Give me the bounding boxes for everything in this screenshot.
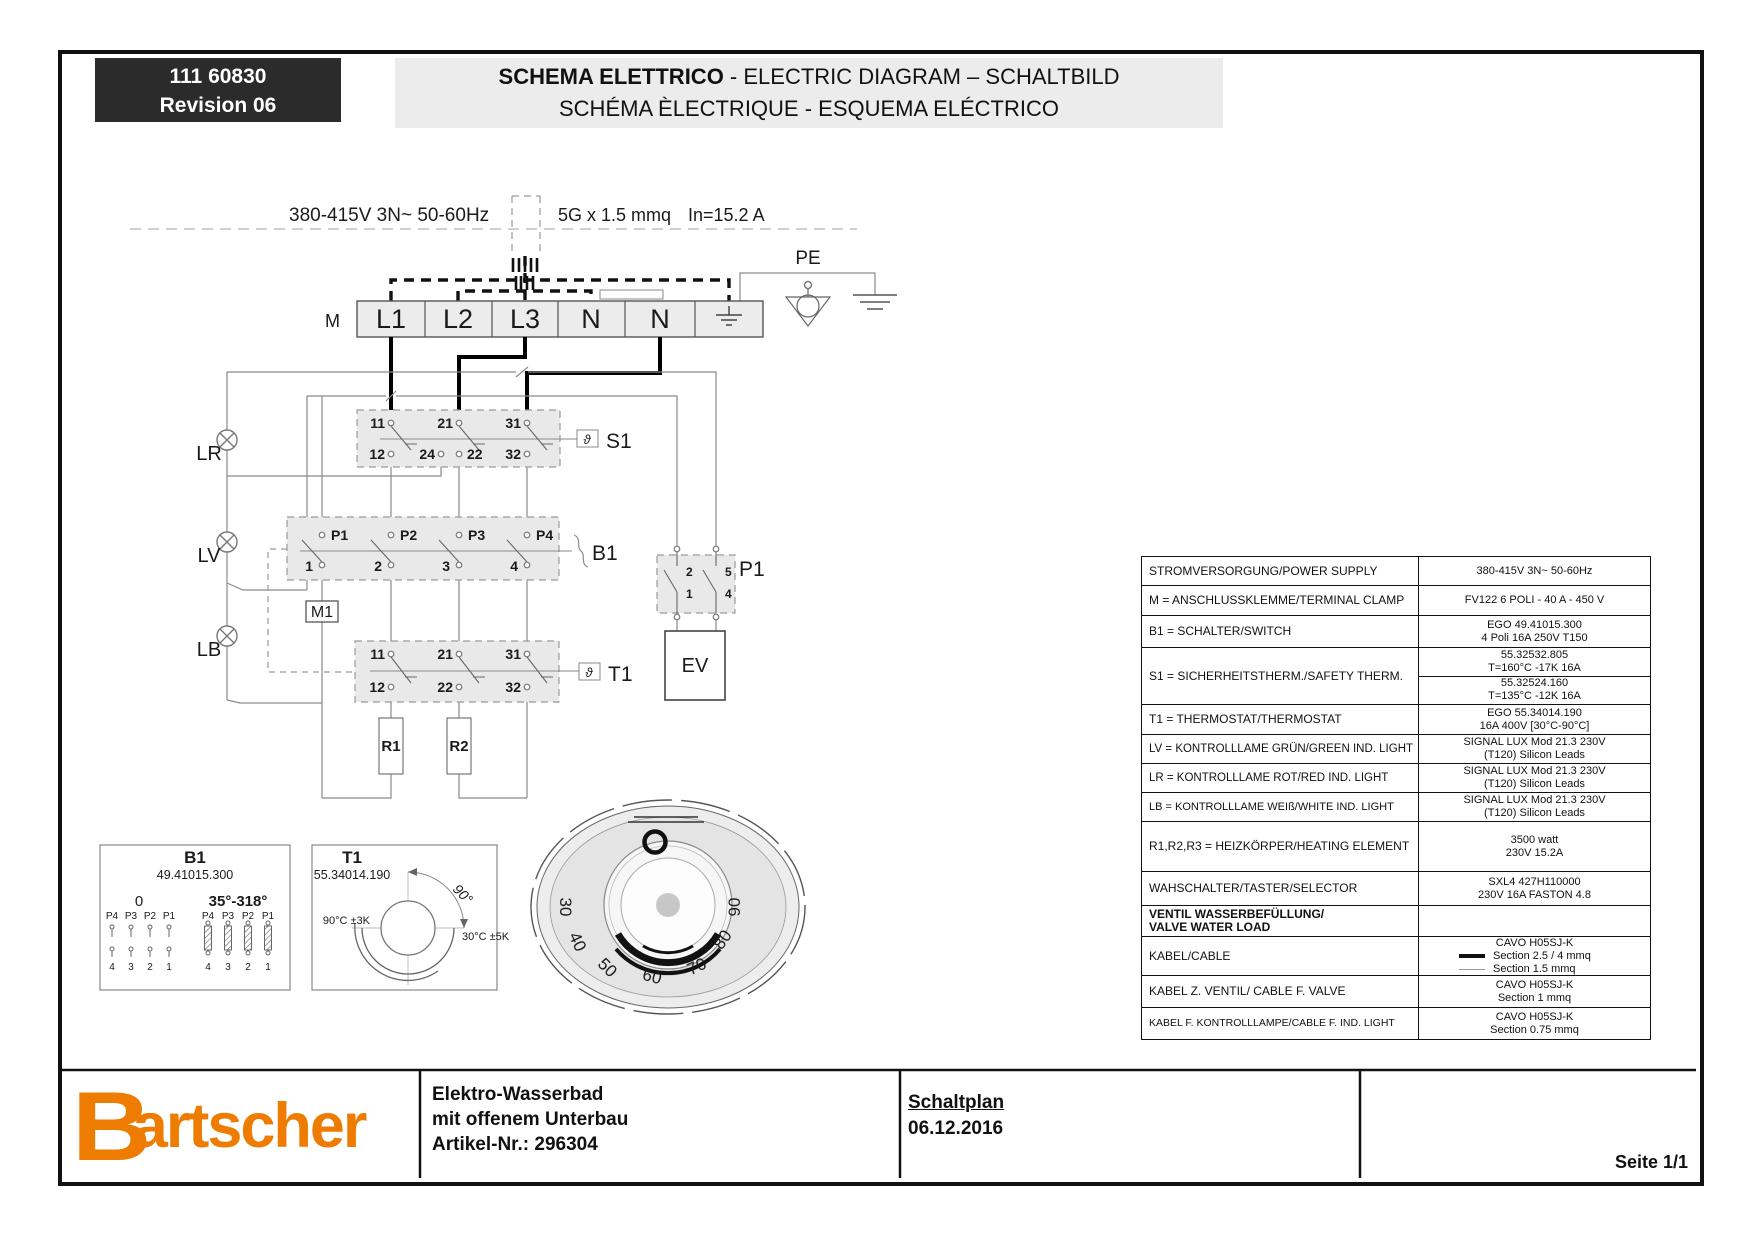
product-line: Artikel-Nr.: 296304 bbox=[432, 1132, 628, 1157]
plan-date: 06.12.2016 bbox=[908, 1116, 1004, 1142]
component-table: STROMVERSORGUNG/POWER SUPPLY380-415V 3N~… bbox=[1141, 556, 1651, 1040]
brand-logo: Bartscher bbox=[72, 1086, 412, 1172]
svg-text:22: 22 bbox=[437, 679, 453, 695]
svg-text:P1: P1 bbox=[739, 558, 765, 581]
phase-wires bbox=[391, 337, 660, 421]
svg-text:90: 90 bbox=[725, 898, 744, 917]
table-row-kabel: KABEL/CABLE CAVO H05SJ-K Section 2.5 / 4… bbox=[1142, 936, 1650, 975]
svg-text:35°-318°: 35°-318° bbox=[209, 893, 268, 910]
svg-text:T1: T1 bbox=[608, 663, 633, 686]
svg-text:4: 4 bbox=[510, 558, 518, 574]
schematic-page: 111 60830 Revision 06 SCHEMA ELETTRICO -… bbox=[0, 0, 1754, 1241]
product-line: mit offenem Unterbau bbox=[432, 1107, 628, 1132]
t1-block: 11 21 31 12 22 32 ϑ T1 bbox=[355, 641, 633, 702]
svg-text:32: 32 bbox=[505, 446, 521, 462]
svg-text:5G x 1.5 mmq: 5G x 1.5 mmq bbox=[558, 205, 671, 225]
supply-labels: 380-415V 3N~ 50-60Hz 5G x 1.5 mmq In=15.… bbox=[130, 205, 857, 229]
svg-text:55.34014.190: 55.34014.190 bbox=[314, 868, 391, 882]
svg-text:11: 11 bbox=[370, 646, 385, 662]
svg-text:2: 2 bbox=[147, 962, 153, 973]
b1-detail: B1 49.41015.300 0 35°-318° P4 P3 P2 P1 P… bbox=[100, 845, 290, 990]
svg-text:21: 21 bbox=[437, 646, 453, 662]
svg-text:90°C ±3K: 90°C ±3K bbox=[323, 915, 371, 927]
svg-text:B1: B1 bbox=[592, 542, 618, 565]
table-row: KABEL Z. VENTIL/ CABLE F. VALVECAVO H05S… bbox=[1142, 975, 1650, 1007]
svg-text:T1: T1 bbox=[342, 848, 362, 867]
svg-text:3: 3 bbox=[225, 962, 231, 973]
table-row: LB = KONTROLLLAME WEIß/WHITE IND. LIGHTS… bbox=[1142, 792, 1650, 821]
table-row: T1 = THERMOSTAT/THERMOSTATEGO 55.34014.1… bbox=[1142, 704, 1650, 734]
svg-text:1: 1 bbox=[265, 962, 271, 973]
ev-box: EV bbox=[665, 631, 725, 700]
brand-logo-text: artscher bbox=[133, 1091, 366, 1161]
indicator-lamps: LR LV LB bbox=[196, 430, 237, 661]
table-row: KABEL F. KONTROLLLAMPE/CABLE F. IND. LIG… bbox=[1142, 1007, 1650, 1039]
table-row: B1 = SCHALTER/SWITCHEGO 49.41015.3004 Po… bbox=[1142, 615, 1650, 647]
svg-text:22: 22 bbox=[467, 446, 483, 462]
pe-earth-symbol bbox=[786, 282, 830, 327]
svg-text:3: 3 bbox=[128, 962, 134, 973]
svg-text:1: 1 bbox=[166, 962, 172, 973]
svg-text:N: N bbox=[650, 304, 670, 334]
svg-text:P3: P3 bbox=[125, 911, 138, 922]
svg-text:0: 0 bbox=[135, 893, 143, 910]
knob-drawing: 30 40 50 60 70 80 90 bbox=[531, 800, 805, 1014]
svg-text:P2: P2 bbox=[400, 527, 417, 543]
table-row: STROMVERSORGUNG/POWER SUPPLY380-415V 3N~… bbox=[1142, 557, 1650, 585]
svg-text:32: 32 bbox=[505, 679, 521, 695]
product-line: Elektro-Wasserbad bbox=[432, 1082, 628, 1107]
svg-text:31: 31 bbox=[505, 415, 521, 431]
svg-text:P1: P1 bbox=[163, 911, 176, 922]
svg-text:LB: LB bbox=[197, 639, 221, 661]
svg-text:4: 4 bbox=[205, 962, 211, 973]
svg-text:P1: P1 bbox=[331, 527, 348, 543]
svg-text:L3: L3 bbox=[510, 304, 540, 334]
svg-text:R2: R2 bbox=[449, 738, 468, 755]
svg-text:21: 21 bbox=[437, 415, 453, 431]
svg-text:P2: P2 bbox=[144, 911, 157, 922]
svg-text:2: 2 bbox=[686, 565, 693, 579]
svg-text:LV: LV bbox=[198, 545, 222, 567]
svg-text:31: 31 bbox=[505, 646, 521, 662]
p1-block: 2 1 5 4 P1 bbox=[657, 546, 765, 620]
svg-text:P2: P2 bbox=[242, 911, 255, 922]
svg-text:5: 5 bbox=[725, 565, 732, 579]
svg-text:P1: P1 bbox=[262, 911, 275, 922]
svg-text:4: 4 bbox=[109, 962, 115, 973]
svg-text:ϑ: ϑ bbox=[585, 665, 593, 680]
plan-info: Schaltplan 06.12.2016 bbox=[908, 1090, 1004, 1142]
nn-jumper bbox=[600, 290, 663, 299]
svg-text:L1: L1 bbox=[376, 304, 406, 334]
table-row-ventil: VENTIL WASSERBEFÜLLUNG/VALVE WATER LOAD bbox=[1142, 905, 1650, 936]
svg-text:1: 1 bbox=[305, 558, 313, 574]
table-row: M = ANSCHLUSSKLEMME/TERMINAL CLAMPFV122 … bbox=[1142, 585, 1650, 615]
svg-text:P3: P3 bbox=[468, 527, 485, 543]
s1-block: 11 21 31 12 24 22 32 ϑ S1 bbox=[357, 410, 632, 467]
svg-text:PE: PE bbox=[795, 248, 820, 269]
svg-text:EV: EV bbox=[682, 655, 709, 677]
svg-text:1: 1 bbox=[686, 587, 693, 601]
svg-text:S1: S1 bbox=[606, 430, 632, 453]
plan-title: Schaltplan bbox=[908, 1090, 1004, 1116]
table-row-s1: S1 = SICHERHEITSTHERM./SAFETY THERM. 55.… bbox=[1142, 647, 1650, 704]
svg-text:R1: R1 bbox=[381, 738, 400, 755]
svg-text:P4: P4 bbox=[536, 527, 553, 543]
page-number: Seite 1/1 bbox=[1480, 1152, 1688, 1173]
svg-text:12: 12 bbox=[369, 446, 385, 462]
knob-center-dot bbox=[656, 893, 680, 917]
svg-text:2: 2 bbox=[245, 962, 251, 973]
product-info: Elektro-Wasserbad mit offenem Unterbau A… bbox=[432, 1082, 628, 1157]
heating-elements: R1 R2 bbox=[379, 718, 471, 774]
svg-text:30°C ±5K: 30°C ±5K bbox=[462, 931, 510, 943]
svg-text:P4: P4 bbox=[202, 911, 215, 922]
table-row: LR = KONTROLLLAME ROT/RED IND. LIGHTSIGN… bbox=[1142, 763, 1650, 792]
svg-text:11: 11 bbox=[370, 415, 385, 431]
t1-detail: T1 55.34014.190 90° 90°C ±3K 30°C ±5K bbox=[312, 845, 510, 990]
svg-text:24: 24 bbox=[419, 446, 435, 462]
table-row: R1,R2,R3 = HEIZKÖRPER/HEATING ELEMENT350… bbox=[1142, 821, 1650, 871]
svg-text:30: 30 bbox=[556, 898, 575, 917]
b1-block: P1 P2 P3 P4 1 2 3 4 B1 bbox=[287, 517, 618, 580]
thick-line-sample bbox=[1459, 954, 1485, 958]
table-row: LV = KONTROLLLAME GRÜN/GREEN IND. LIGHTS… bbox=[1142, 734, 1650, 763]
svg-text:M1: M1 bbox=[311, 604, 333, 621]
svg-text:M: M bbox=[325, 311, 340, 331]
svg-text:In=15.2 A: In=15.2 A bbox=[688, 205, 765, 225]
svg-text:3: 3 bbox=[442, 558, 450, 574]
svg-text:380-415V 3N~ 50-60Hz: 380-415V 3N~ 50-60Hz bbox=[289, 205, 489, 226]
thin-line-sample bbox=[1459, 969, 1485, 970]
svg-text:LR: LR bbox=[196, 443, 222, 465]
svg-text:4: 4 bbox=[725, 587, 732, 601]
svg-text:L2: L2 bbox=[443, 304, 473, 334]
brand-logo-b: B bbox=[72, 1086, 147, 1166]
svg-text:N: N bbox=[581, 304, 601, 334]
svg-text:P3: P3 bbox=[222, 911, 235, 922]
svg-text:ϑ: ϑ bbox=[583, 432, 591, 447]
svg-text:P4: P4 bbox=[106, 911, 119, 922]
svg-text:2: 2 bbox=[374, 558, 382, 574]
svg-text:B1: B1 bbox=[184, 848, 206, 867]
b1-bracket bbox=[574, 535, 588, 567]
table-row: WAHSCHALTER/TASTER/SELECTORSXL4 427H1100… bbox=[1142, 871, 1650, 905]
m1-box: M1 bbox=[306, 601, 338, 622]
svg-text:12: 12 bbox=[369, 679, 385, 695]
svg-text:49.41015.300: 49.41015.300 bbox=[157, 868, 234, 882]
